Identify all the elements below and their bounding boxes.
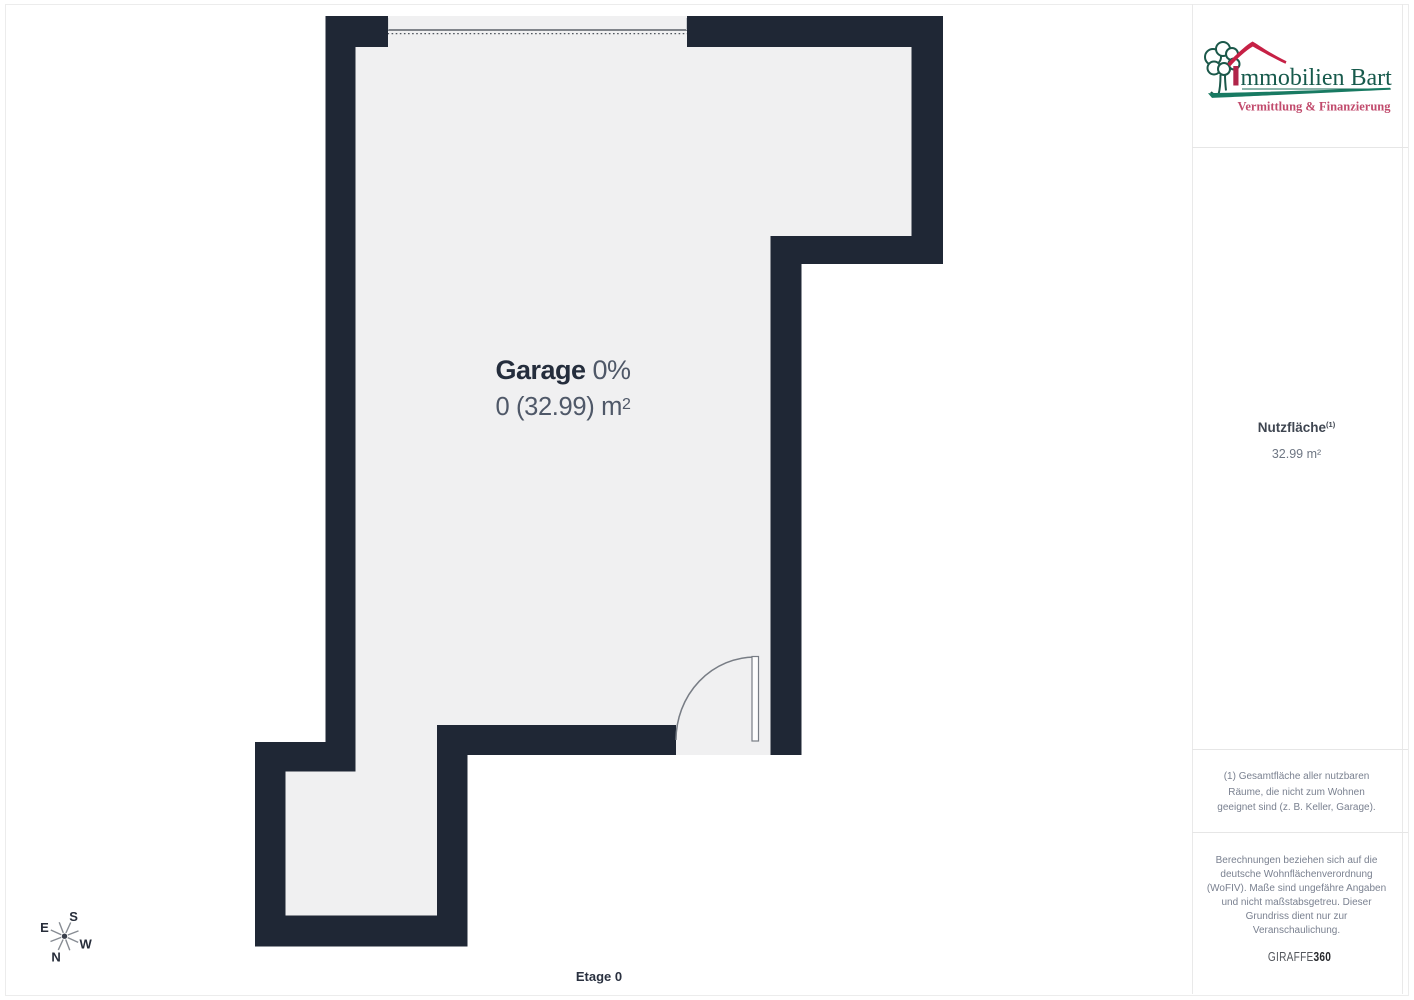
svg-text:S: S (69, 909, 78, 924)
svg-text:mmobilien Bart: mmobilien Bart (1241, 65, 1393, 91)
svg-text:Vermittlung & Finanzierung: Vermittlung & Finanzierung (1237, 99, 1391, 113)
svg-text:W: W (80, 937, 93, 952)
svg-text:N: N (51, 950, 60, 965)
svg-text:E: E (40, 920, 49, 935)
